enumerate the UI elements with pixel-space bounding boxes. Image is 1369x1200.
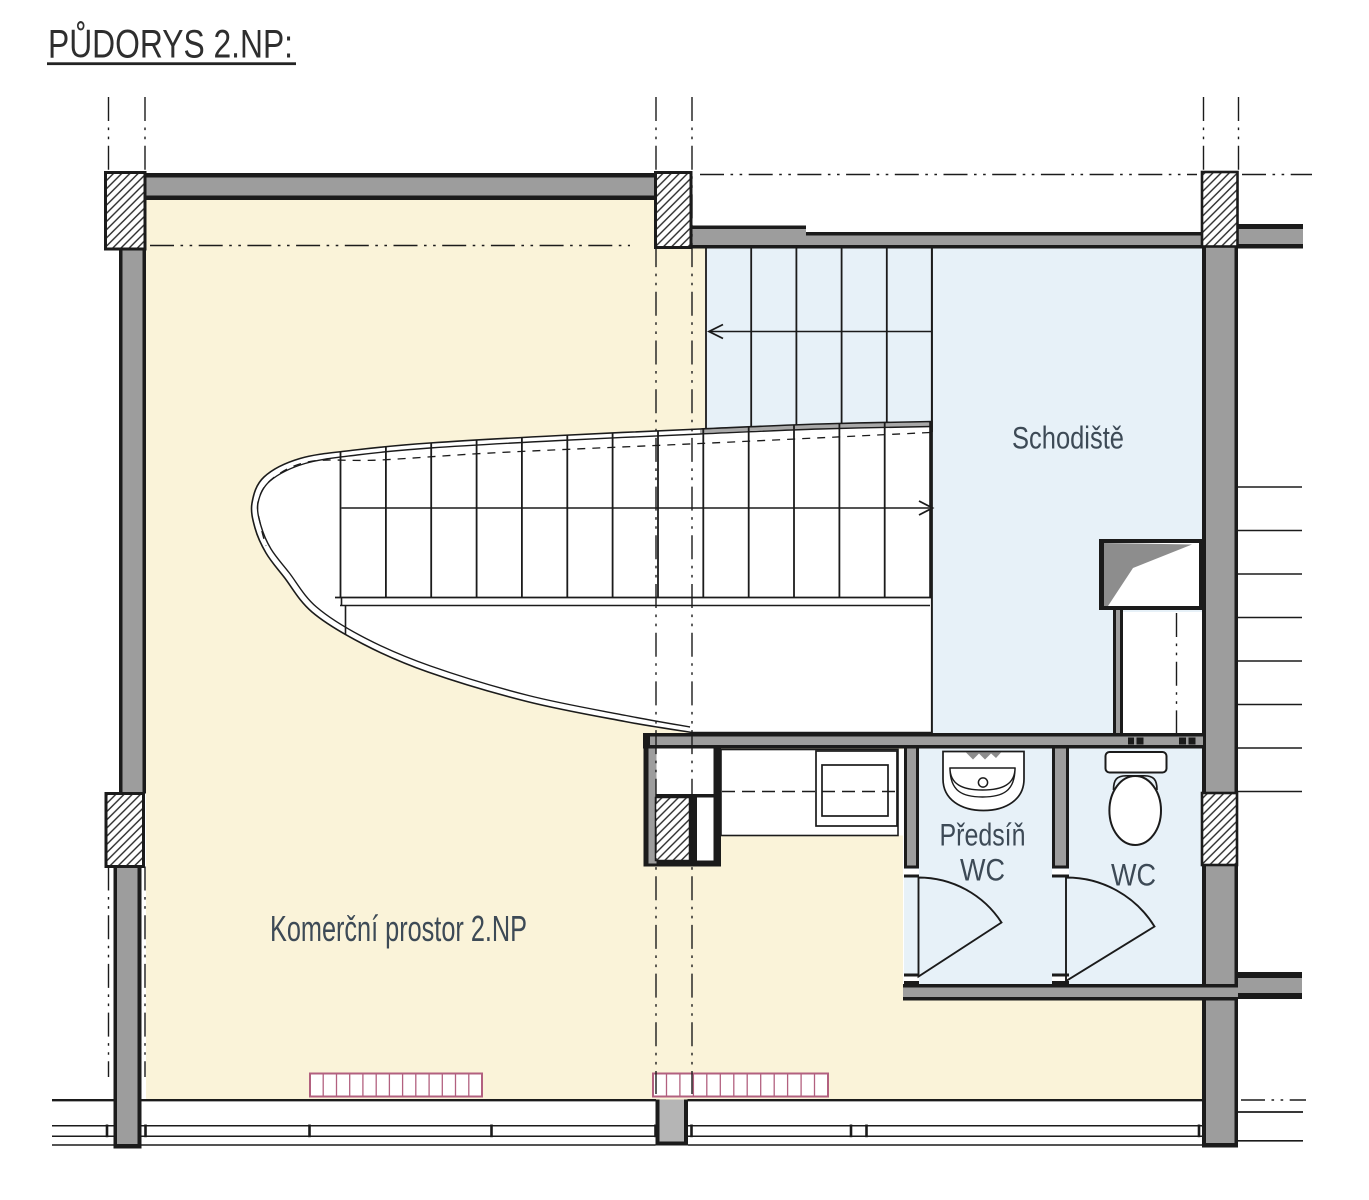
svg-text:WC: WC [960,852,1005,888]
svg-text:WC: WC [1111,857,1156,893]
svg-text:Předsíň: Předsíň [940,817,1026,853]
svg-text:Komerční prostor 2.NP: Komerční prostor 2.NP [270,908,527,949]
svg-text:PŮDORYS 2.NP:: PŮDORYS 2.NP: [48,20,293,67]
svg-text:Schodiště: Schodiště [1012,420,1124,456]
